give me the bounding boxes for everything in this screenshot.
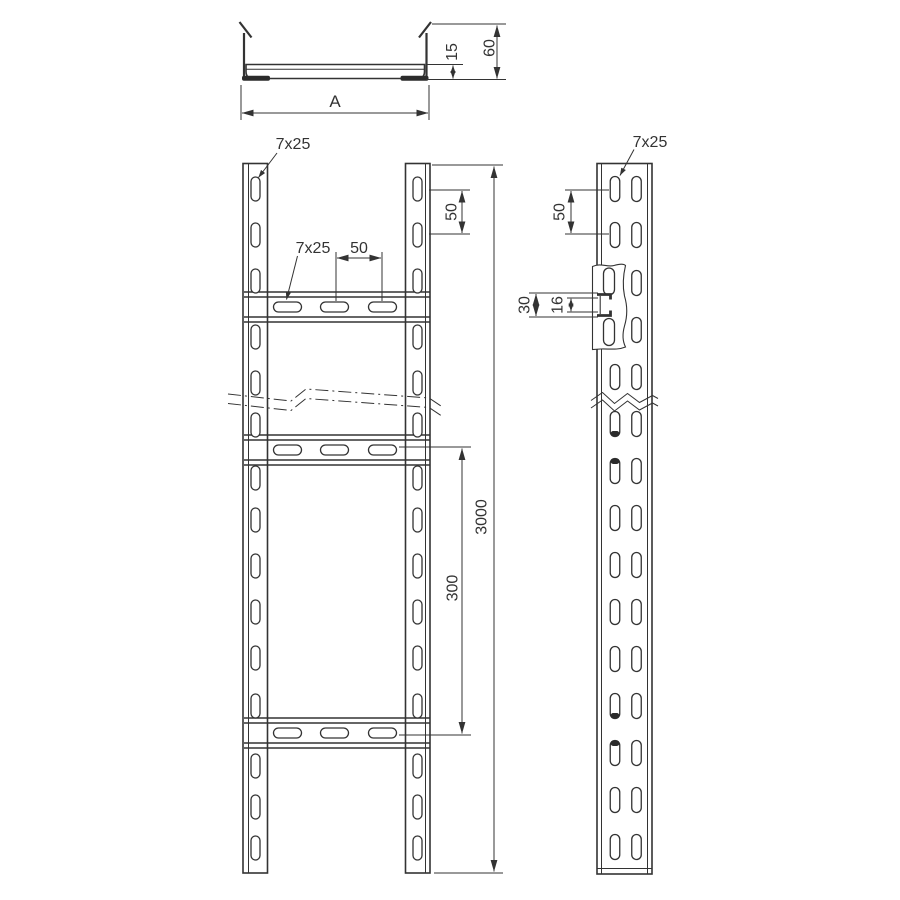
perforation-slot — [610, 365, 620, 390]
perforation-slot — [632, 647, 642, 672]
rung-end-mark — [611, 431, 620, 437]
perforation-slot — [632, 506, 642, 531]
perforation-slot — [610, 223, 620, 248]
perforation-slot — [413, 754, 422, 778]
front-right-rail-slots — [413, 177, 422, 860]
rung-slot — [274, 302, 302, 312]
perforation-slot — [610, 553, 620, 578]
perforation-slot — [632, 553, 642, 578]
perforation-slot — [413, 223, 422, 247]
dim-label-rung-slot-pitch: 50 — [350, 240, 368, 257]
perforation-slot — [610, 835, 620, 860]
perforation-slot — [413, 413, 422, 437]
dimension-3000: 3000 — [432, 165, 503, 873]
coupler-bracket — [593, 264, 627, 349]
dimension-50-rail-slots: 50 — [429, 190, 470, 234]
perforation-slot — [632, 271, 642, 296]
perforation-slot — [632, 741, 642, 766]
right-top-lip — [419, 22, 431, 38]
perforation-slot — [610, 177, 620, 202]
left-bottom-flange — [242, 76, 270, 81]
ladder-front-view: 7x25 7x25 50 50 3000 3 — [228, 136, 503, 873]
perforation-slot — [251, 177, 260, 201]
front-rail-slot-label: 7x25 — [276, 136, 311, 153]
ladder-side-view: 7x25 50 30 16 — [517, 134, 668, 874]
perforation-slot — [632, 835, 642, 860]
dim-label-clamp-outer: 30 — [517, 296, 534, 314]
perforation-slot — [413, 371, 422, 395]
perforation-slot — [632, 459, 642, 484]
drawing-canvas: 15 60 A 7x25 7x25 — [0, 0, 900, 900]
dimension-50-side: 50 — [552, 190, 610, 234]
perforation-slot — [251, 754, 260, 778]
perforation-slot — [610, 647, 620, 672]
perforation-slot — [413, 600, 422, 624]
rung-slot — [321, 728, 349, 738]
perforation-slot — [413, 646, 422, 670]
rung-slot — [369, 445, 397, 455]
front-rung-slot-label: 7x25 — [296, 240, 331, 257]
break-lines-front — [228, 389, 444, 418]
rung-profile — [246, 65, 425, 79]
perforation-slot — [413, 694, 422, 718]
perforation-slot — [610, 788, 620, 813]
rung-end-mark — [611, 741, 620, 747]
right-bottom-flange — [401, 76, 429, 81]
rung-slot — [369, 728, 397, 738]
perforation-slot — [251, 600, 260, 624]
rung-slot — [274, 728, 302, 738]
callout-rung-slot: 7x25 — [287, 240, 331, 300]
left-top-lip — [240, 22, 252, 38]
callout-side-slot: 7x25 — [620, 134, 667, 176]
perforation-slot — [632, 177, 642, 202]
perforation-slot — [251, 836, 260, 860]
perforation-slot — [251, 554, 260, 578]
perforation-slot — [632, 412, 642, 437]
callout-rail-slot: 7x25 — [259, 136, 311, 178]
rung-end-mark — [611, 713, 620, 719]
perforation-slot — [413, 836, 422, 860]
dim-label-side-slot-pitch: 50 — [552, 203, 569, 221]
dimension-16: 16 — [550, 296, 599, 314]
rung — [244, 718, 430, 748]
dim-label-rung-height: 15 — [444, 43, 461, 61]
ladder-rungs — [244, 292, 430, 748]
dimension-A: A — [241, 85, 429, 120]
rung-slot — [274, 445, 302, 455]
rung — [244, 292, 430, 322]
dim-label-total-height: 60 — [482, 39, 499, 57]
dim-label-clamp-inner: 16 — [550, 296, 567, 314]
rung-slot — [321, 445, 349, 455]
perforation-slot — [251, 269, 260, 293]
perforation-slot — [632, 318, 642, 343]
perforation-slot — [413, 325, 422, 349]
perforation-slot — [413, 269, 422, 293]
rung-end-mark — [611, 459, 620, 465]
perforation-slot — [632, 694, 642, 719]
side-slot-label: 7x25 — [633, 134, 668, 151]
rung-slot — [321, 302, 349, 312]
perforation-slot — [251, 694, 260, 718]
dim-label-rung-spacing: 300 — [445, 575, 462, 602]
perforation-slot — [413, 508, 422, 532]
perforation-slot — [251, 508, 260, 532]
perforation-slot — [413, 177, 422, 201]
dim-label-width-a: A — [329, 92, 341, 111]
perforation-slot — [413, 795, 422, 819]
perforation-slot — [251, 413, 260, 437]
dimension-300: 300 — [399, 447, 471, 735]
perforation-slot — [632, 600, 642, 625]
perforation-slot — [251, 223, 260, 247]
side-rail-slots-right — [632, 177, 642, 860]
rung-slot — [369, 302, 397, 312]
perforation-slot — [632, 788, 642, 813]
perforation-slot — [632, 223, 642, 248]
perforation-slot — [632, 365, 642, 390]
technical-drawing: 15 60 A 7x25 7x25 — [0, 0, 900, 900]
rung — [244, 435, 430, 465]
perforation-slot — [610, 600, 620, 625]
perforation-slot — [251, 646, 260, 670]
perforation-slot — [251, 466, 260, 490]
perforation-slot — [413, 466, 422, 490]
perforation-slot — [251, 325, 260, 349]
perforation-slot — [251, 371, 260, 395]
dim-label-rail-slot-pitch: 50 — [444, 203, 461, 221]
dim-label-length: 3000 — [474, 499, 491, 535]
perforation-slot — [610, 506, 620, 531]
perforation-slot — [413, 554, 422, 578]
cross-section-view: 15 60 A — [240, 22, 507, 120]
perforation-slot — [251, 795, 260, 819]
front-left-rail-slots — [251, 177, 260, 860]
